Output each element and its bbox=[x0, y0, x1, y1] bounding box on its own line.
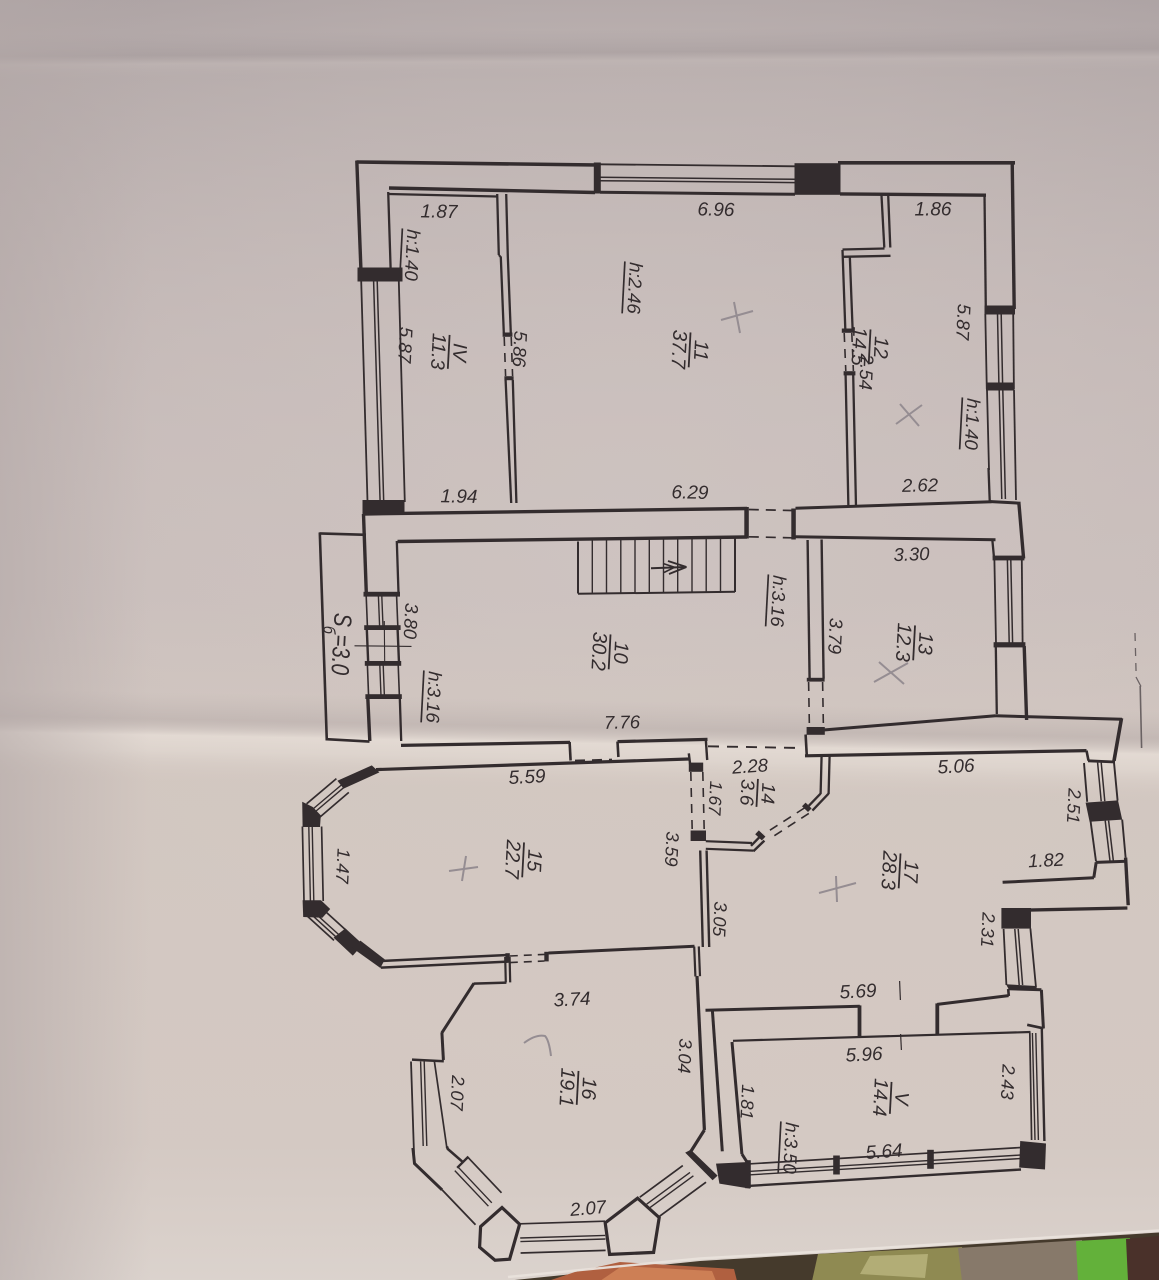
svg-text:3.79: 3.79 bbox=[824, 617, 847, 654]
svg-text:14: 14 bbox=[756, 782, 778, 804]
svg-text:h:3.16: h:3.16 bbox=[767, 575, 791, 628]
svg-text:1.82: 1.82 bbox=[1027, 849, 1065, 872]
svg-text:2.31: 2.31 bbox=[977, 911, 999, 948]
svg-text:5.96: 5.96 bbox=[845, 1044, 883, 1067]
svg-text:10: 10 bbox=[609, 641, 632, 664]
svg-text:5.59: 5.59 bbox=[508, 766, 546, 789]
svg-text:1.94: 1.94 bbox=[440, 486, 477, 508]
svg-text:h:1.40: h:1.40 bbox=[961, 398, 985, 451]
svg-text:30.2: 30.2 bbox=[586, 631, 610, 671]
svg-text:14.4: 14.4 bbox=[868, 1078, 892, 1117]
svg-text:h:3.50: h:3.50 bbox=[779, 1122, 803, 1175]
svg-text:5.87: 5.87 bbox=[952, 303, 975, 341]
svg-text:3.59: 3.59 bbox=[661, 831, 683, 867]
svg-text:1.86: 1.86 bbox=[915, 200, 952, 221]
svg-text:5.64: 5.64 bbox=[865, 1140, 903, 1164]
svg-text:2.07: 2.07 bbox=[568, 1196, 607, 1220]
svg-text:5.87: 5.87 bbox=[394, 326, 417, 364]
svg-text:11: 11 bbox=[689, 339, 712, 361]
svg-text:1.67: 1.67 bbox=[704, 780, 726, 816]
svg-text:22.7: 22.7 bbox=[500, 838, 524, 880]
svg-text:12.3: 12.3 bbox=[891, 622, 915, 662]
svg-text:37.7: 37.7 bbox=[666, 329, 690, 370]
svg-text:12: 12 bbox=[869, 336, 892, 359]
svg-text:16: 16 bbox=[577, 1077, 600, 1101]
svg-text:14.5: 14.5 bbox=[846, 326, 870, 367]
svg-text:3.80: 3.80 bbox=[400, 602, 423, 640]
svg-text:17: 17 bbox=[899, 860, 922, 884]
svg-text:5.06: 5.06 bbox=[937, 756, 975, 779]
svg-text:15: 15 bbox=[522, 849, 545, 873]
svg-text:6.96: 6.96 bbox=[697, 199, 735, 221]
svg-text:5.86: 5.86 bbox=[509, 330, 532, 368]
svg-text:2.43: 2.43 bbox=[997, 1063, 1019, 1100]
svg-text:7.76: 7.76 bbox=[604, 711, 641, 733]
svg-text:1.81: 1.81 bbox=[736, 1084, 758, 1120]
svg-text:3.74: 3.74 bbox=[553, 989, 591, 1012]
svg-text:1.47: 1.47 bbox=[332, 848, 354, 885]
svg-text:h:1.40: h:1.40 bbox=[401, 229, 425, 282]
svg-text:5.69: 5.69 bbox=[839, 981, 877, 1004]
svg-text:11.3: 11.3 bbox=[426, 333, 450, 371]
svg-text:6.29: 6.29 bbox=[671, 482, 709, 504]
svg-text:28.3: 28.3 bbox=[876, 849, 900, 890]
svg-text:3.6: 3.6 bbox=[735, 779, 757, 807]
svg-text:h:3.16: h:3.16 bbox=[422, 671, 446, 724]
svg-text:1.87: 1.87 bbox=[420, 201, 459, 223]
svg-text:19.1: 19.1 bbox=[554, 1067, 578, 1107]
svg-text:2.51: 2.51 bbox=[1063, 787, 1085, 824]
svg-text:IV: IV bbox=[448, 343, 471, 365]
svg-text:2.62: 2.62 bbox=[901, 474, 939, 496]
svg-text:2.07: 2.07 bbox=[446, 1074, 468, 1112]
svg-text:3.30: 3.30 bbox=[893, 543, 930, 565]
svg-text:3.04: 3.04 bbox=[674, 1038, 696, 1074]
svg-text:13: 13 bbox=[913, 632, 936, 655]
svg-text:h:2.46: h:2.46 bbox=[623, 262, 647, 315]
svg-text:2.28: 2.28 bbox=[730, 754, 769, 778]
svg-text:3.05: 3.05 bbox=[709, 901, 731, 938]
